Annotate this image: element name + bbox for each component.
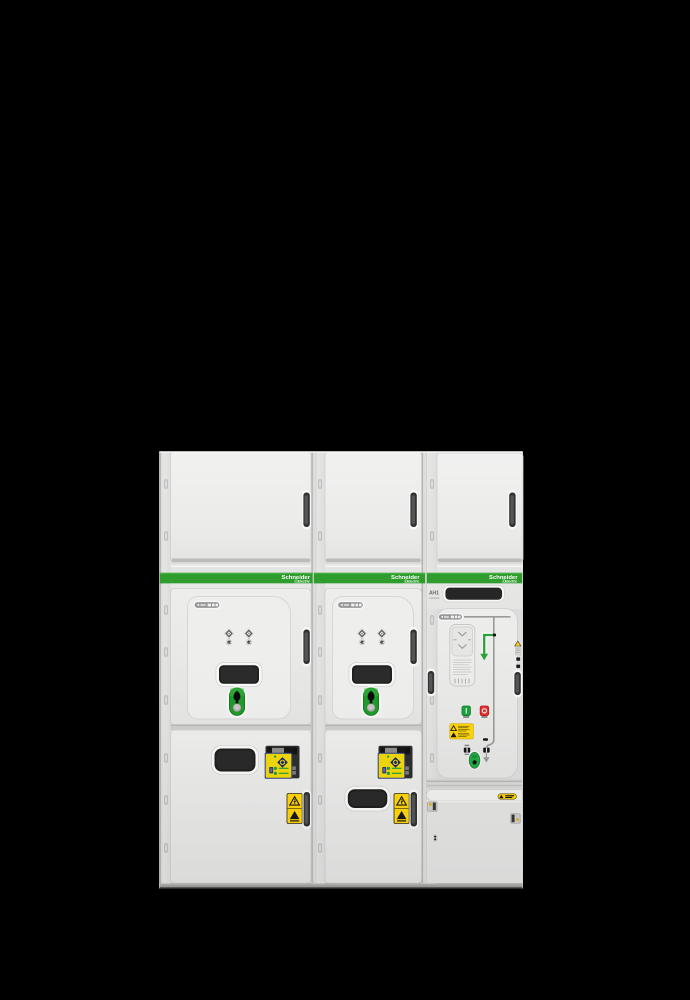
svg-text:FEEDER: FEEDER [429, 596, 440, 600]
svg-text:AH1: AH1 [429, 590, 439, 596]
